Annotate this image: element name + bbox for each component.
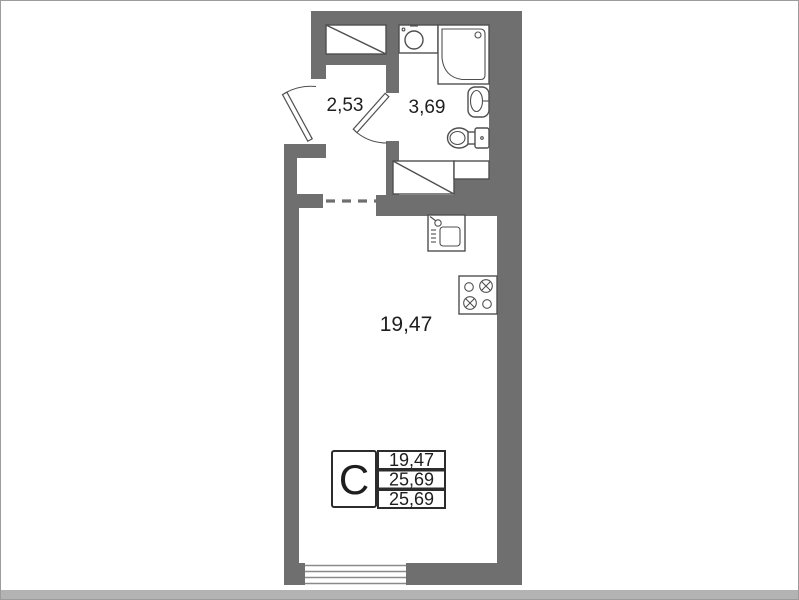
legend-table: C 19,47 25,69 25,69 bbox=[332, 450, 445, 509]
window-icon bbox=[305, 563, 406, 585]
wall-right bbox=[497, 216, 522, 585]
shower-icon bbox=[438, 25, 489, 84]
entry-door-icon bbox=[283, 86, 316, 141]
wall-stub-entry bbox=[311, 25, 326, 79]
wall-sink-icon bbox=[468, 87, 489, 117]
legend-value-3: 25,69 bbox=[389, 489, 434, 509]
wall-under-wardrobe bbox=[326, 54, 386, 65]
room-label-bathroom: 3,69 bbox=[409, 97, 446, 118]
legend-type-label: C bbox=[339, 456, 369, 503]
wardrobe-icon bbox=[326, 25, 386, 54]
toilet-icon bbox=[448, 128, 490, 148]
room-label-living-room: 19,47 bbox=[380, 313, 433, 336]
floor-plan-image: 2,53 3,69 19,47 C 19,47 25,69 25,69 bbox=[0, 0, 799, 600]
image-bottom-strip bbox=[1, 590, 798, 599]
wall-left bbox=[284, 194, 299, 585]
washbasin-icon bbox=[399, 25, 438, 53]
floor-plan: 2,53 3,69 19,47 C 19,47 25,69 25,69 bbox=[1, 1, 798, 599]
room-label-hallway: 2,53 bbox=[327, 95, 364, 116]
legend-value-1: 19,47 bbox=[389, 450, 434, 470]
wall-bottom-right bbox=[406, 563, 522, 585]
wall-partition-top bbox=[386, 25, 399, 93]
wall-step-block bbox=[454, 179, 497, 196]
wall-bathroom-bottom bbox=[376, 195, 522, 216]
kitchen-sink-icon bbox=[428, 215, 465, 251]
wall-bottom-left bbox=[284, 563, 305, 585]
legend-value-2: 25,69 bbox=[389, 470, 434, 490]
stove-icon bbox=[459, 276, 497, 314]
